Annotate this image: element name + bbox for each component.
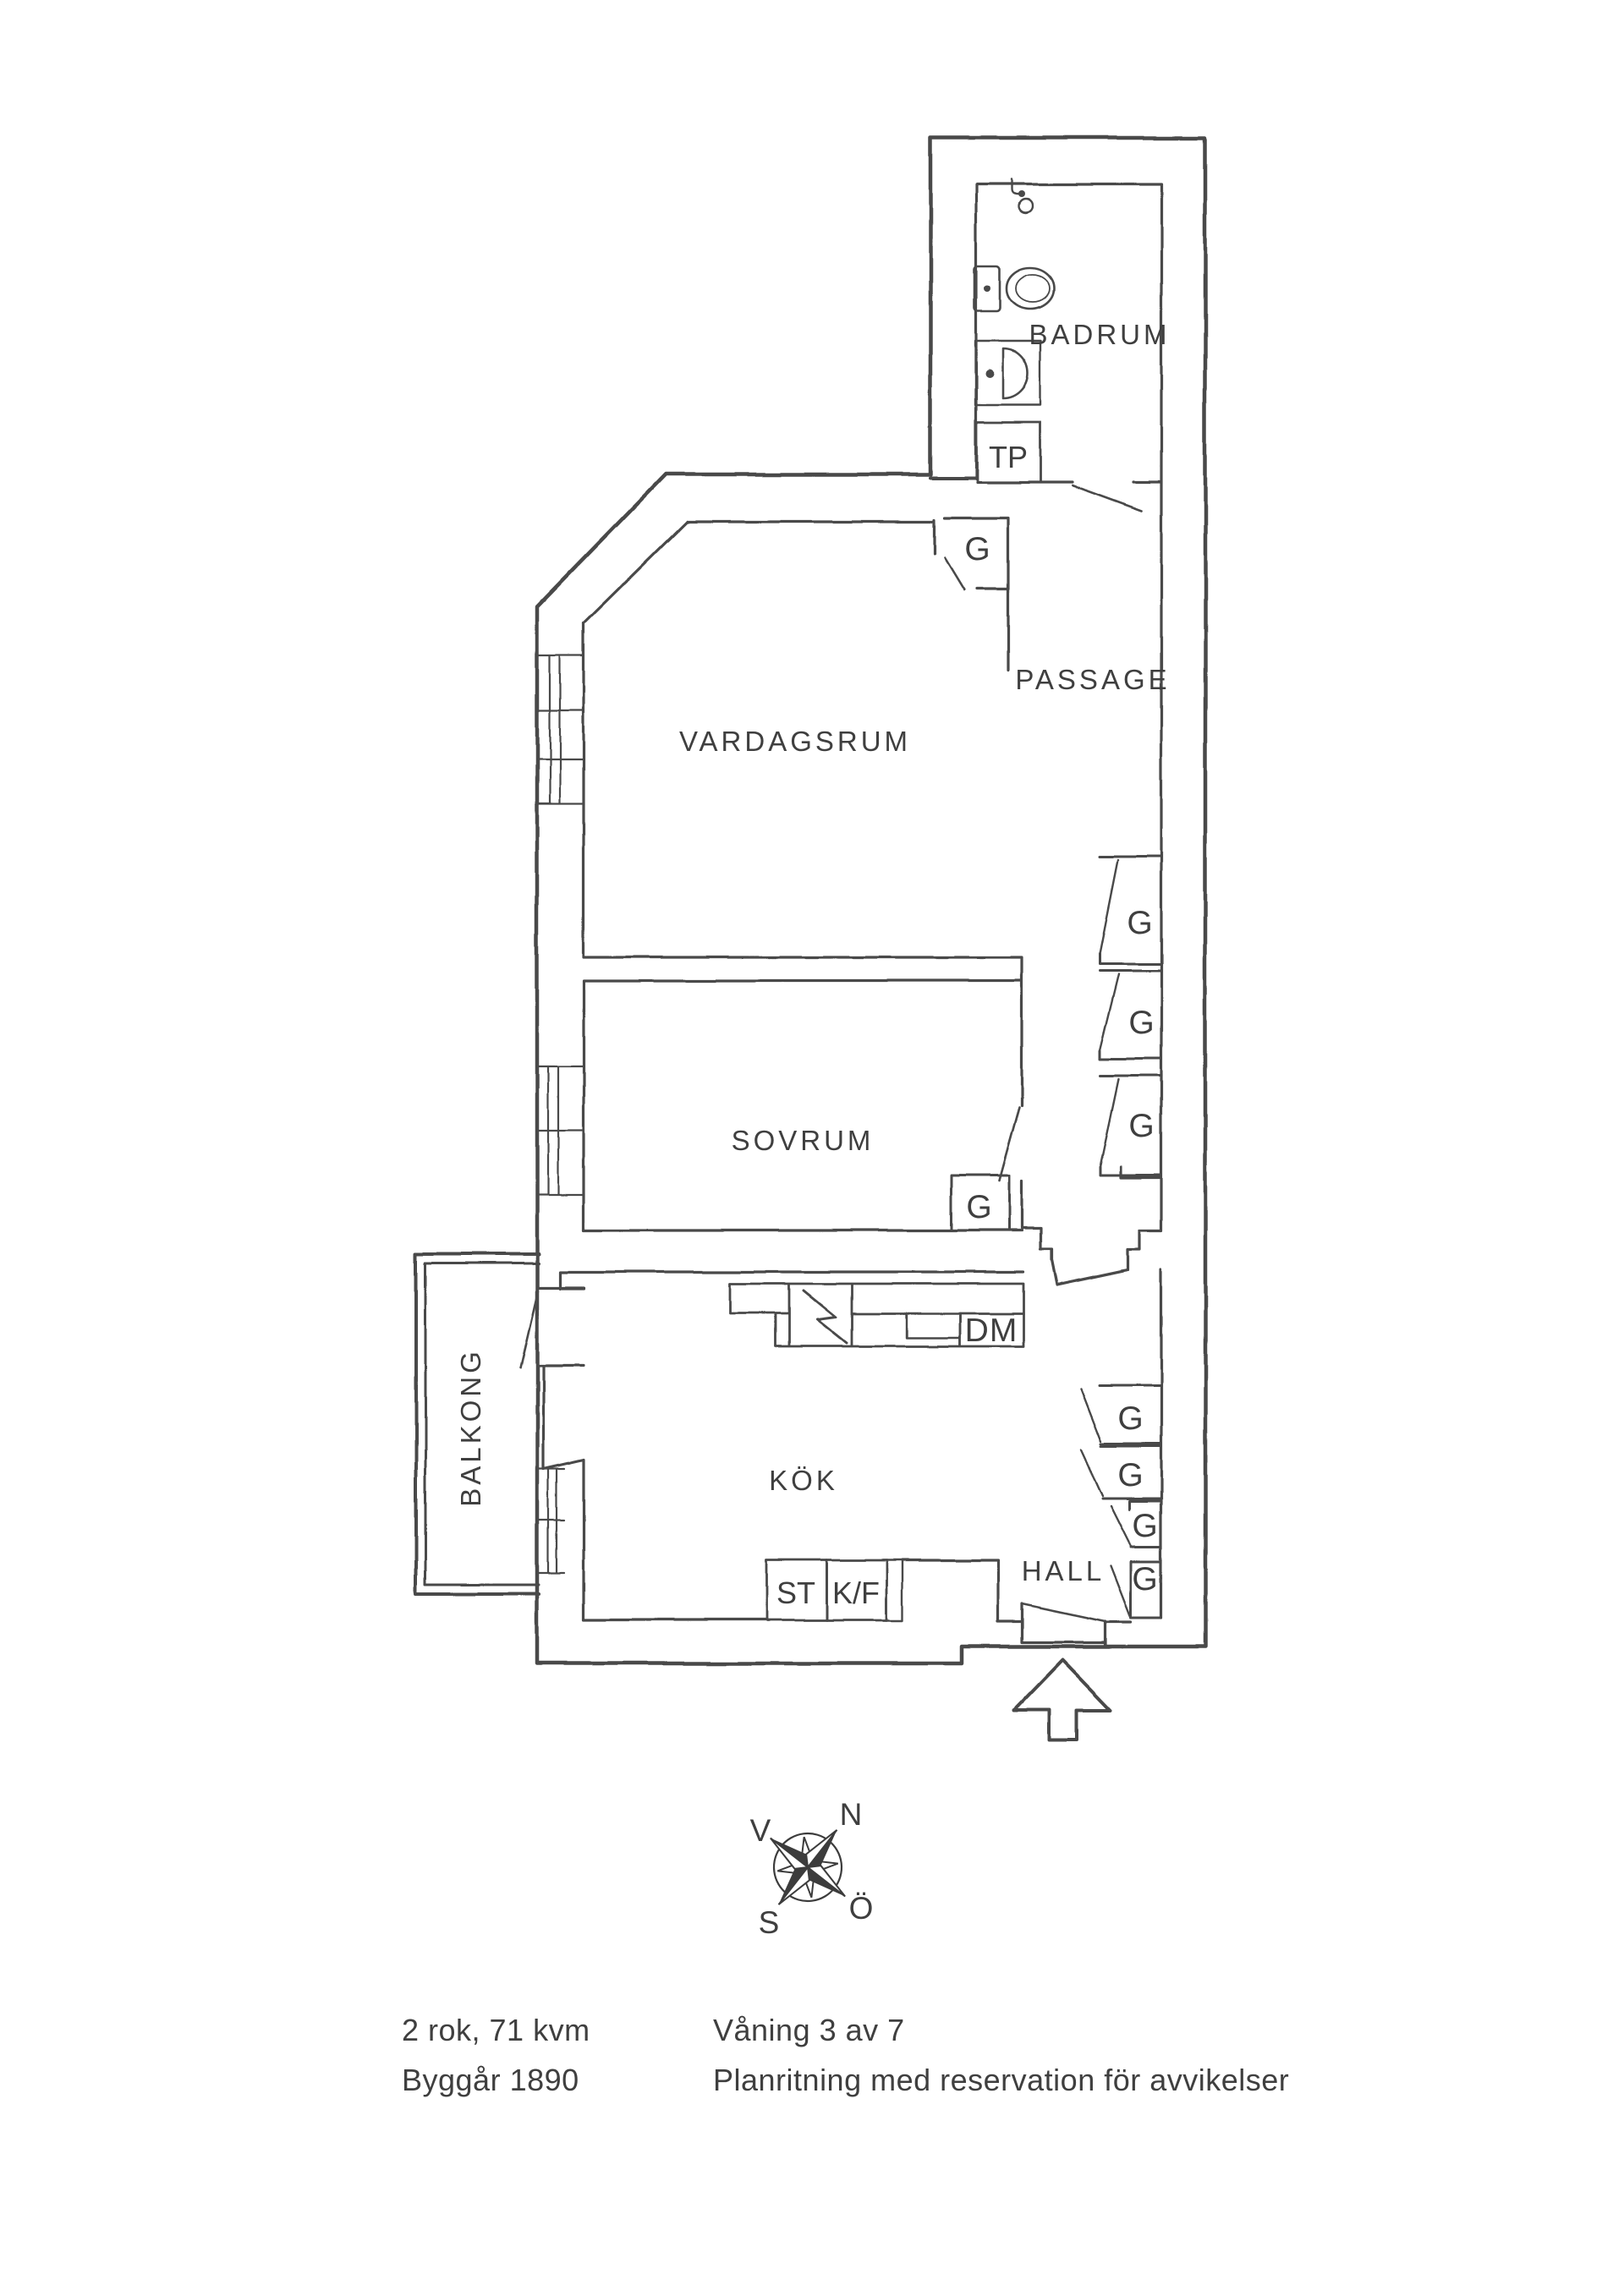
shower-head-icon: [1018, 200, 1032, 213]
wardrobe-door-leaves: [1081, 860, 1131, 1616]
footer-build-year: Byggår 1890: [402, 2063, 579, 2097]
bath-sink-box: [975, 341, 1040, 405]
room-labels-layer: BADRUM PASSAGE VARDAGSRUM SOVRUM KÖK HAL…: [455, 319, 1171, 1586]
dm-label: DM: [965, 1312, 1018, 1349]
compass-south-label: S: [759, 1905, 780, 1940]
compass-north-label: N: [840, 1797, 863, 1832]
footer-rooms-area: 2 rok, 71 kvm: [402, 2013, 590, 2047]
kf-label: K/F: [832, 1575, 880, 1610]
fixtures-layer: [730, 179, 1111, 1740]
bath-sink-bowl-icon: [1003, 348, 1029, 398]
shower-hose-icon: [1012, 179, 1019, 195]
room-label-kok: KÖK: [769, 1465, 838, 1496]
tp-label: TP: [989, 440, 1028, 474]
wardrobe-label: G: [1132, 1561, 1158, 1597]
floor-plan-page: { "page": { "background": "#ffffff", "in…: [0, 0, 1624, 2296]
wardrobe-label: G: [1132, 1508, 1158, 1544]
room-label-vardagsrum: VARDAGSRUM: [679, 726, 911, 757]
narrow-cabinet-box: [886, 1560, 903, 1620]
room-label-hall: HALL: [1022, 1555, 1106, 1586]
kitchen-sink-icon: [907, 1313, 960, 1338]
shower-joint-icon: [1018, 191, 1024, 198]
outer-wall: [537, 138, 1205, 1663]
wardrobe-label: G: [966, 1189, 992, 1225]
inner-walls: [537, 184, 1161, 1647]
wardrobe-label: G: [1127, 905, 1153, 941]
footer-facts: 2 rok, 71 kvm Byggår 1890 Våning 3 av 7 …: [402, 2013, 1289, 2097]
floor-plan-svg: N V S Ö BADRUM PASSAGE VARDAGSRUM SOVRUM…: [0, 0, 1624, 2296]
wardrobe-label: G: [1117, 1457, 1144, 1493]
room-label-balkong: BALKONG: [455, 1348, 486, 1507]
toilet-seat-icon: [1016, 275, 1050, 302]
compass-rose-icon: N V S Ö: [741, 1797, 874, 1940]
st-label: ST: [776, 1575, 815, 1610]
wardrobe-label: G: [964, 531, 990, 567]
stove-icon: [804, 1290, 847, 1343]
compass-east-label: Ö: [849, 1891, 874, 1926]
room-label-sovrum: SOVRUM: [732, 1125, 875, 1156]
toilet-bowl-icon: [1007, 268, 1054, 309]
toilet-flush-icon: [984, 285, 990, 292]
room-label-passage: PASSAGE: [1015, 664, 1170, 695]
entrance-arrow-icon: [1014, 1660, 1111, 1740]
wardrobe-label: G: [1128, 1005, 1155, 1041]
walls-layer: [416, 138, 1205, 1663]
wardrobe-boxes: [952, 857, 1161, 1618]
fixture-labels-layer: TP DM ST K/F G G G G G G G G G: [776, 440, 1159, 1610]
door-leaves: [520, 485, 1142, 1621]
room-label-badrum: BADRUM: [1029, 319, 1170, 350]
wardrobe-label: G: [1117, 1400, 1144, 1437]
wardrobe-label: G: [1128, 1108, 1155, 1144]
footer-floor: Våning 3 av 7: [713, 2013, 905, 2047]
footer-disclaimer: Planritning med reservation för avvikels…: [713, 2063, 1289, 2097]
bath-sink-faucet-icon: [985, 369, 994, 377]
compass-west-label: V: [750, 1813, 771, 1848]
